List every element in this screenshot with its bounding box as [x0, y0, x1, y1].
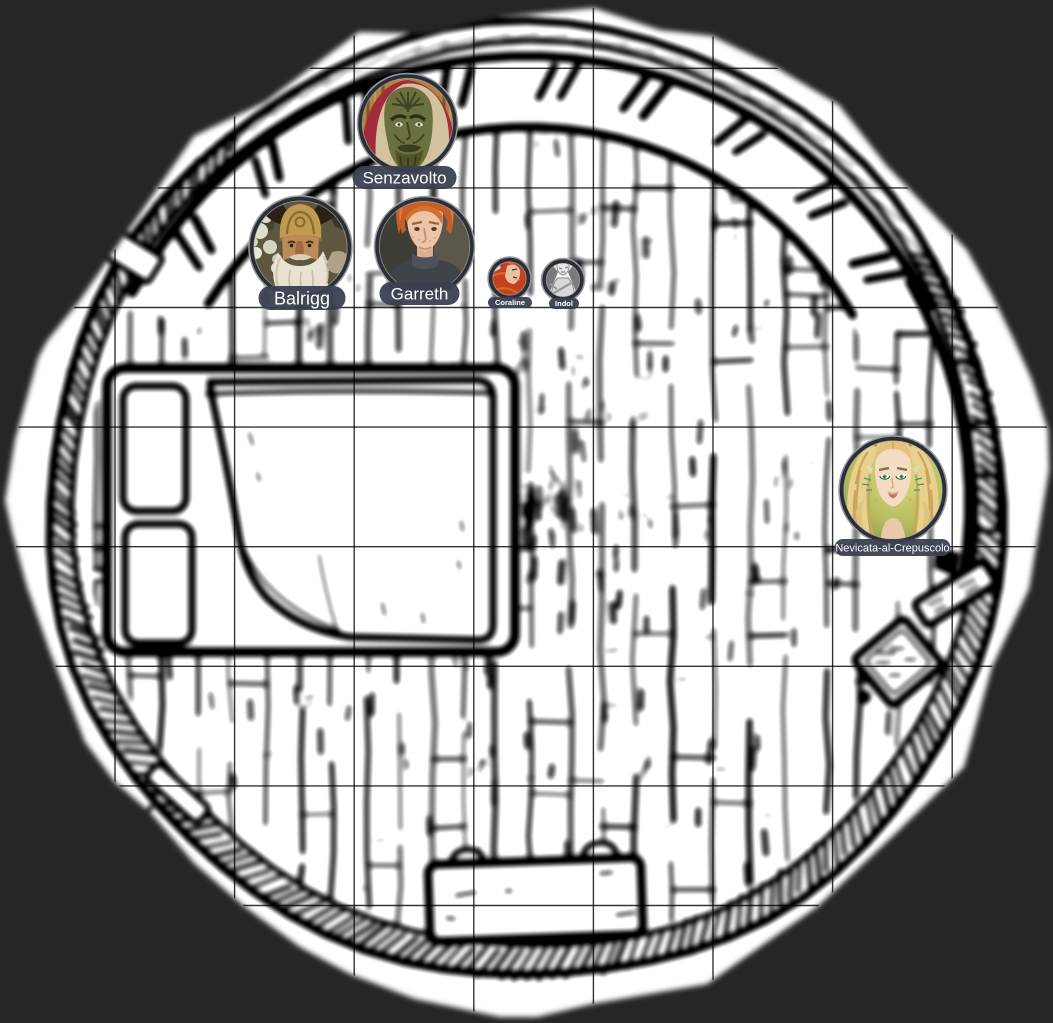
- svg-text:Indol: Indol: [555, 299, 573, 308]
- svg-text:Senzavolto: Senzavolto: [362, 168, 446, 187]
- svg-text:Balrigg: Balrigg: [274, 288, 330, 308]
- svg-text:Nevicata-al-Crepuscolo: Nevicata-al-Crepuscolo: [835, 542, 949, 554]
- svg-text:Coraline: Coraline: [495, 298, 525, 307]
- svg-text:Garreth: Garreth: [391, 284, 449, 303]
